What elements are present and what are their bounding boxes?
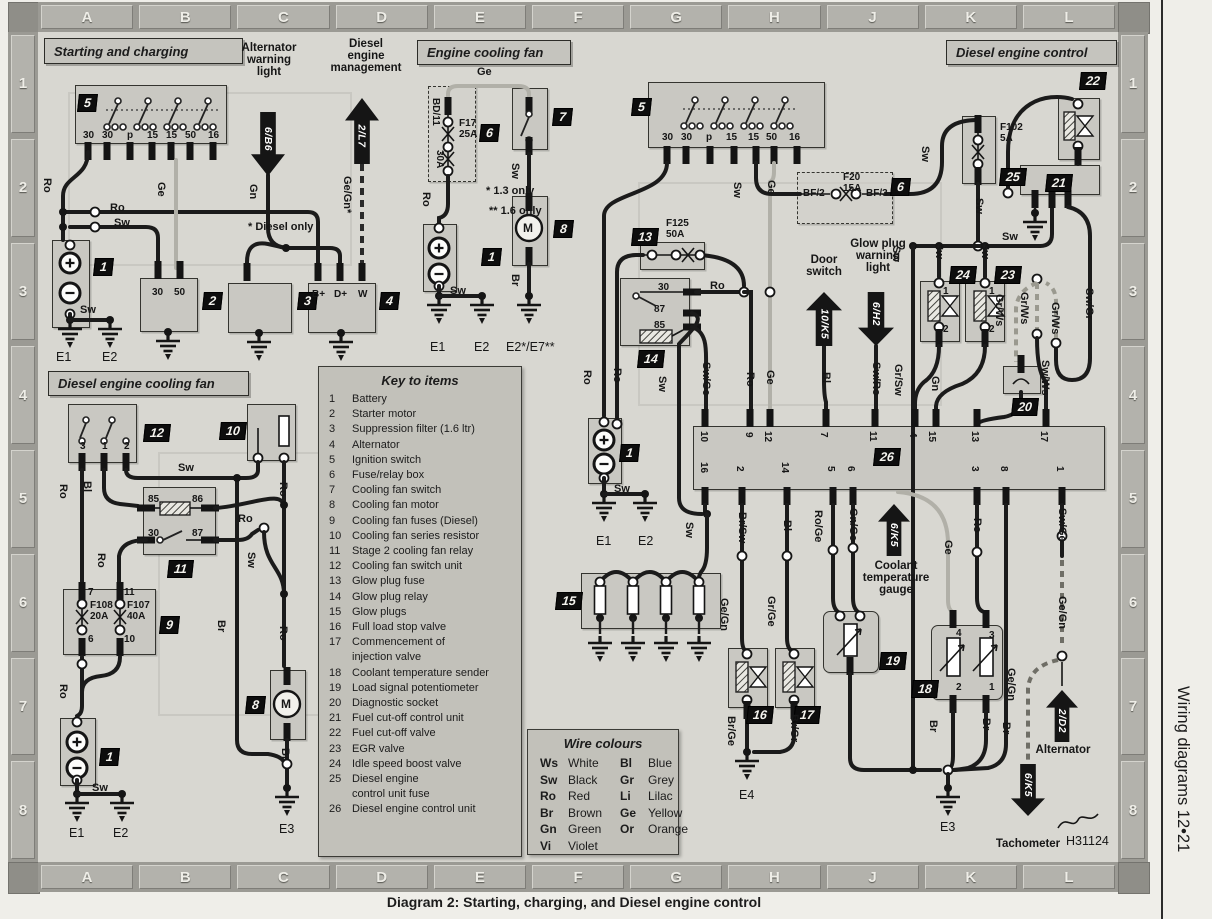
page-edge-line	[1161, 0, 1163, 919]
component-box	[728, 648, 768, 708]
wire-label: E4	[739, 788, 754, 802]
wire-label: Sw	[450, 286, 466, 298]
key-item: 10 Cooling fan series resistor	[319, 529, 521, 544]
wire-label: Ro	[94, 553, 106, 568]
wire-label: 15	[166, 130, 177, 141]
page-sidebar-title: Wiring diagrams 12•21	[1173, 686, 1192, 852]
wire-label: Sw	[114, 218, 130, 230]
component-badge: 8	[245, 696, 266, 714]
wire-label: 9	[743, 432, 754, 438]
component-badge: 5	[77, 94, 98, 112]
wire-label: Ro	[110, 203, 125, 215]
key-item: 15 Glow plugs	[319, 605, 521, 620]
arrow-reference-label: 6/K5	[888, 523, 900, 547]
component-badge: 6	[479, 124, 500, 142]
wire-label: 87	[654, 304, 665, 315]
grid-letters-bottom: ABCDEFGHJKL	[38, 862, 1118, 892]
component-badge: 11	[167, 560, 194, 578]
wire-label: H31124	[1066, 834, 1109, 848]
wire-label: 3	[80, 441, 86, 452]
wire-label: 17	[1038, 431, 1049, 442]
wire-label: Sw	[80, 305, 96, 317]
wire-label: 7	[818, 432, 829, 438]
grid-number: 7	[1121, 658, 1145, 756]
grid-letter: B	[139, 865, 231, 889]
key-item: 26 Diesel engine control unit	[319, 802, 521, 817]
component-box	[60, 718, 96, 786]
wire-label: E2*/E7**	[506, 340, 555, 354]
key-item: 12 Cooling fan switch unit	[319, 559, 521, 574]
key-item: 3 Suppression filter (1.6 ltr)	[319, 422, 521, 437]
wire-label: Ge/Gn*	[340, 176, 352, 213]
wire-label: BF/3	[866, 188, 888, 199]
grid-letter: K	[925, 5, 1017, 29]
grid-letter: C	[237, 5, 329, 29]
component-box	[640, 242, 705, 270]
wire-label: 15	[926, 431, 937, 442]
component-box	[228, 283, 292, 333]
wire-label: 16	[208, 130, 219, 141]
wire-label: 30	[102, 130, 113, 141]
wire-label: 6	[845, 466, 856, 472]
grid-letter: A	[41, 5, 133, 29]
component-badge: 18	[911, 680, 939, 698]
wire-label: Ro	[970, 518, 982, 533]
grid-letter: B	[139, 5, 231, 29]
arrow-reference-label: 10/K5	[818, 309, 830, 340]
component-box	[1003, 366, 1041, 394]
arrow-reference-label: 2/L7	[356, 125, 368, 148]
component-box	[775, 648, 815, 708]
wire-colour-row: Gn Green Or Orange	[528, 821, 678, 838]
wire-label: Br	[999, 722, 1011, 734]
wire-label: 30	[152, 287, 163, 298]
component-badge: 6	[890, 178, 911, 196]
grid-letter: L	[1023, 865, 1115, 889]
grid-letter: J	[827, 5, 919, 29]
section-header: Diesel engine control	[946, 40, 1117, 65]
wire-label: Gr/Ws	[1017, 292, 1029, 324]
wire-label: 4	[956, 628, 962, 639]
wire-label: Bl	[819, 372, 831, 383]
wire-label: E1	[56, 350, 71, 364]
wire-label: Ro/Ge	[811, 510, 823, 542]
wire-label: Bl	[80, 481, 92, 492]
section-header: Diesel engine cooling fan	[48, 371, 249, 396]
wire-label: 50	[185, 130, 196, 141]
grid-number: 1	[1121, 35, 1145, 133]
key-item: 20 Diagnostic socket	[319, 696, 521, 711]
wire-label: 15	[147, 130, 158, 141]
wire-label: Ro	[743, 372, 755, 387]
wire-label: 2	[943, 324, 949, 335]
wire-label: Ro	[580, 370, 592, 385]
wire-label: Tachometer	[996, 838, 1060, 850]
component-badge: 8	[553, 220, 574, 238]
wire-label: Ro	[40, 178, 52, 193]
component-box	[920, 281, 960, 342]
arrow-reference-label: 6/H2	[870, 302, 882, 326]
grid-letter: A	[41, 865, 133, 889]
wire-label: 87	[192, 528, 203, 539]
wire-label: Alternator warning light	[242, 42, 297, 78]
grid-number: 4	[11, 346, 35, 444]
wire-label: B+	[312, 289, 325, 300]
wire-label: 4	[907, 432, 918, 438]
wire-label: Ge	[941, 540, 953, 555]
grid-numbers-left: 12345678	[8, 32, 38, 862]
wiring-diagram-page: ABCDEFGHJKL ABCDEFGHJKL 12345678 1234567…	[0, 0, 1212, 919]
key-item: 16 Full load stop valve	[319, 620, 521, 635]
wire-label: 10	[124, 634, 135, 645]
wire-label: 7	[88, 587, 94, 598]
component-badge: 19	[879, 652, 907, 670]
grid-letter: D	[336, 865, 428, 889]
grid-letter: J	[827, 865, 919, 889]
grid-number: 7	[11, 658, 35, 756]
grid-letter: H	[728, 865, 820, 889]
wire-colour-row: Ws White Bl Blue	[528, 755, 678, 772]
key-item: 13 Glow plug fuse	[319, 574, 521, 589]
component-badge: 23	[994, 266, 1022, 284]
component-badge: 25	[999, 168, 1027, 186]
wire-label: M	[523, 221, 533, 235]
wire-label: Ro	[610, 368, 622, 383]
wire-label: Ge	[154, 182, 166, 197]
wire-label: E2	[474, 340, 489, 354]
wire-label: 2	[956, 682, 962, 693]
component-box	[423, 224, 457, 292]
wire-label: 12	[762, 431, 773, 442]
wire-label: 11	[867, 431, 878, 442]
wire-label: Gn	[246, 184, 258, 199]
wire-label: Br	[926, 720, 938, 732]
grid-number: 6	[1121, 554, 1145, 652]
key-item: 21 Fuel cut-off control unit	[319, 711, 521, 726]
key-item: 18 Coolant temperature sender	[319, 666, 521, 681]
arrow-reference-label: 2/D2	[1056, 709, 1068, 733]
component-box	[823, 611, 879, 673]
wire-label: F107 40A	[127, 600, 150, 622]
wire-label: Ge	[477, 67, 492, 79]
component-box	[63, 589, 156, 655]
arrow-reference-label: 6/B6	[262, 127, 274, 151]
grid-number: 2	[11, 139, 35, 237]
component-badge: 20	[1011, 398, 1039, 416]
wire-label: Br	[214, 620, 226, 632]
grid-number: 4	[1121, 346, 1145, 444]
grid-letter: E	[434, 865, 526, 889]
component-badge: 21	[1045, 174, 1073, 192]
frame-corner	[1118, 862, 1150, 894]
wire-label: Sw	[655, 376, 667, 392]
wire-label: Sw/Ge	[699, 362, 711, 396]
wire-label: 1	[943, 286, 949, 297]
grid-number: 6	[11, 554, 35, 652]
key-item: 7 Cooling fan switch	[319, 483, 521, 498]
key-item: 14 Glow plug relay	[319, 590, 521, 605]
wire-label: Ge/Gn	[1004, 668, 1016, 701]
wire-label: 6	[88, 634, 94, 645]
component-badge: 10	[219, 422, 247, 440]
component-badge: 26	[873, 448, 901, 466]
wire-label: 16	[698, 462, 709, 473]
wire-label: E1	[430, 340, 445, 354]
wire-label: Sw	[614, 484, 630, 496]
key-item: 5 Ignition switch	[319, 453, 521, 468]
wire-label: 13	[969, 431, 980, 442]
wire-colours-panel: Wire colours Ws White Bl Blue Sw Black G…	[527, 729, 679, 855]
component-badge: 4	[379, 292, 400, 310]
wire-label: Gr/Ws	[1048, 302, 1060, 334]
frame-corner	[1118, 2, 1150, 34]
component-badge: 12	[143, 424, 171, 442]
wire-label: Bl	[780, 520, 792, 531]
wire-label: 50	[174, 287, 185, 298]
wire-label: Ro	[56, 484, 68, 499]
component-badge: 1	[481, 248, 502, 266]
wire-label: M	[281, 697, 291, 711]
wire-label: Sw	[932, 243, 944, 259]
component-box	[247, 404, 296, 461]
grid-letter: L	[1023, 5, 1115, 29]
key-item: 8 Cooling fan motor	[319, 498, 521, 513]
wire-label: E3	[279, 822, 294, 836]
grid-numbers-right: 12345678	[1118, 32, 1148, 862]
key-item: 19 Load signal potentiometer	[319, 681, 521, 696]
grid-letter: D	[336, 5, 428, 29]
wire-label: Door switch	[806, 254, 842, 278]
frame-corner	[8, 862, 40, 894]
wire-label: * 1.3 only	[486, 186, 534, 198]
wire-label: Ro	[276, 626, 288, 641]
grid-letter: F	[532, 865, 624, 889]
wire-label: 85	[654, 320, 665, 331]
wire-label: F102 5A	[1000, 122, 1023, 144]
wire-label: Gr/Ws	[992, 294, 1004, 326]
wire-label: 2	[734, 466, 745, 472]
grid-letters-top: ABCDEFGHJKL	[38, 2, 1118, 32]
grid-letter: F	[532, 5, 624, 29]
wire-label: Coolant temperature gauge	[863, 560, 929, 596]
wire-label: p	[706, 132, 712, 143]
component-box	[140, 278, 198, 332]
wire-label: Gr/Sw	[891, 364, 903, 396]
wire-label: Ro	[710, 281, 725, 293]
wire-label: Diesel engine management	[331, 38, 402, 74]
wire-label: Sw	[682, 522, 694, 538]
wire-label: Ro	[419, 192, 431, 207]
wire-label: F17 25A	[459, 118, 477, 140]
wire-label: Br	[508, 274, 520, 286]
component-badge: 13	[631, 228, 659, 246]
wire-label: E3	[940, 820, 955, 834]
key-item: 1 Battery	[319, 392, 521, 407]
section-header: Engine cooling fan	[417, 40, 571, 65]
key-panel-title: Key to items	[319, 373, 521, 388]
wire-label: Ge/Gn	[1055, 596, 1067, 629]
wire-label: Gr/Ge	[764, 596, 776, 627]
grid-letter: G	[630, 5, 722, 29]
grid-number: 3	[1121, 243, 1145, 341]
wire-label: Gn	[928, 376, 940, 391]
section-header: Starting and charging	[44, 38, 243, 64]
wire-label: Sw/Gr	[1082, 288, 1094, 320]
wire-label: Ro	[276, 482, 288, 497]
key-item: 22 Fuel cut-off valve	[319, 726, 521, 741]
component-box	[962, 116, 996, 184]
wire-colour-row: Vi Violet	[528, 838, 678, 855]
wire-label: 16	[789, 132, 800, 143]
wire-label: 5	[825, 466, 836, 472]
key-item: 17 Commencement of injection valve	[319, 635, 521, 665]
frame-corner	[8, 2, 40, 34]
key-item: 23 EGR valve	[319, 742, 521, 757]
key-item: 9 Cooling fan fuses (Diesel)	[319, 514, 521, 529]
grid-number: 8	[11, 761, 35, 859]
wire-label: 30A	[434, 150, 445, 168]
wire-label: 3	[969, 466, 980, 472]
wire-label: Sw	[730, 182, 742, 198]
component-badge: 24	[949, 266, 977, 284]
component-badge: 9	[159, 616, 180, 634]
wire-label: Br/Gr	[787, 714, 799, 742]
wire-label: Ro	[56, 684, 68, 699]
wire-label: Sw	[972, 198, 984, 214]
grid-letter: G	[630, 865, 722, 889]
wire-label: 85	[148, 494, 159, 505]
wire-label: BD/11	[430, 98, 441, 126]
diagram-caption: Diagram 2: Starting, charging, and Diese…	[0, 894, 1148, 910]
wire-label: 2	[124, 441, 130, 452]
wire-label: Ro	[238, 514, 253, 526]
component-box	[581, 573, 721, 629]
wire-label: Sw	[178, 463, 194, 475]
key-item: 4 Alternator	[319, 438, 521, 453]
wire-label: Br	[278, 748, 290, 760]
wire-label: 1	[102, 441, 108, 452]
wire-label: Ge	[763, 370, 775, 385]
wire-label: Sw	[918, 146, 930, 162]
wire-label: 15	[726, 132, 737, 143]
wire-label: 1	[1054, 466, 1065, 472]
component-box	[68, 404, 137, 463]
wire-label: Br/Sw	[735, 512, 747, 543]
wire-label: E1	[596, 534, 611, 548]
grid-letter: E	[434, 5, 526, 29]
component-badge: 16	[746, 706, 774, 724]
wire-label: BF/2	[803, 188, 825, 199]
wire-label: E1	[69, 826, 84, 840]
wire-label: p	[127, 130, 133, 141]
wire-label: F20 15A	[843, 172, 861, 194]
wire-label: Sw	[92, 783, 108, 795]
wire-label: 3	[989, 630, 995, 641]
component-badge: 1	[619, 444, 640, 462]
wire-label: * Diesel only	[248, 222, 313, 234]
wire-label: Alternator	[1036, 744, 1091, 756]
wire-label: Ge	[764, 180, 776, 195]
grid-letter: K	[925, 865, 1017, 889]
component-badge: 22	[1079, 72, 1107, 90]
wire-label: 30	[148, 528, 159, 539]
wire-label: Sw/Ws	[1038, 360, 1050, 395]
wire-label: 30	[681, 132, 692, 143]
component-badge: 1	[93, 258, 114, 276]
wire-label: E2	[113, 826, 128, 840]
grid-number: 1	[11, 35, 35, 133]
wire-label: 10	[698, 431, 709, 442]
wire-label: 8	[998, 466, 1009, 472]
grid-letter: C	[237, 865, 329, 889]
key-item: 6 Fuse/relay box	[319, 468, 521, 483]
wire-label: 30	[83, 130, 94, 141]
wire-label: 30	[662, 132, 673, 143]
wire-label: 86	[192, 494, 203, 505]
wire-label: 14	[779, 462, 790, 473]
component-badge: 2	[202, 292, 223, 310]
arrow-reference-label: 6/K5	[1022, 773, 1034, 797]
grid-letter: H	[728, 5, 820, 29]
component-badge: 1	[99, 748, 120, 766]
wire-colour-row: Br Brown Ge Yellow	[528, 805, 678, 822]
wire-label: 30	[658, 282, 669, 293]
grid-number: 8	[1121, 761, 1145, 859]
wire-label: F125 50A	[666, 218, 689, 240]
wire-label: Sw	[1002, 232, 1018, 244]
wire-colour-row: Ro Red Li Lilac	[528, 788, 678, 805]
wire-label: W	[358, 289, 367, 300]
component-badge: 5	[631, 98, 652, 116]
component-badge: 7	[552, 108, 573, 126]
wire-label: Gn/Ge	[846, 508, 858, 541]
key-to-items-panel: Key to items 1 Battery 2 Starter motor 3…	[318, 366, 522, 857]
wire-label: F108 20A	[90, 600, 113, 622]
wire-label: 15	[748, 132, 759, 143]
wire-label: 50	[766, 132, 777, 143]
wire-label: E2	[102, 350, 117, 364]
wire-label: Sw	[889, 246, 901, 262]
component-box	[588, 418, 622, 484]
wire-label: Sw	[978, 243, 990, 259]
key-item: 2 Starter motor	[319, 407, 521, 422]
wire-label: Sw/Ge	[1055, 508, 1067, 542]
grid-number: 2	[1121, 139, 1145, 237]
wire-label: Br/Ge	[724, 716, 736, 746]
wire-label: 11	[124, 587, 135, 598]
wire-label: Br	[979, 718, 991, 730]
key-item: 25 Diesel engine control unit fuse	[319, 772, 521, 802]
component-box	[512, 88, 548, 150]
wire-colour-row: Sw Black Gr Grey	[528, 772, 678, 789]
key-item: 24 Idle speed boost valve	[319, 757, 521, 772]
component-badge: 14	[637, 350, 665, 368]
component-box	[1058, 98, 1100, 160]
wire-label: ** 1.6 only	[489, 206, 542, 218]
wire-label: E2	[638, 534, 653, 548]
wire-label: Sw	[244, 552, 256, 568]
wire-label: Sw	[508, 163, 520, 179]
wire-label: D+	[334, 289, 347, 300]
grid-number: 5	[11, 450, 35, 548]
wire-label: Ge/Gn	[717, 598, 729, 631]
wire-label: 1	[989, 682, 995, 693]
component-badge: 15	[555, 592, 583, 610]
key-item: 11 Stage 2 cooling fan relay	[319, 544, 521, 559]
grid-number: 5	[1121, 450, 1145, 548]
grid-number: 3	[11, 243, 35, 341]
wire-colours-title: Wire colours	[528, 736, 678, 751]
